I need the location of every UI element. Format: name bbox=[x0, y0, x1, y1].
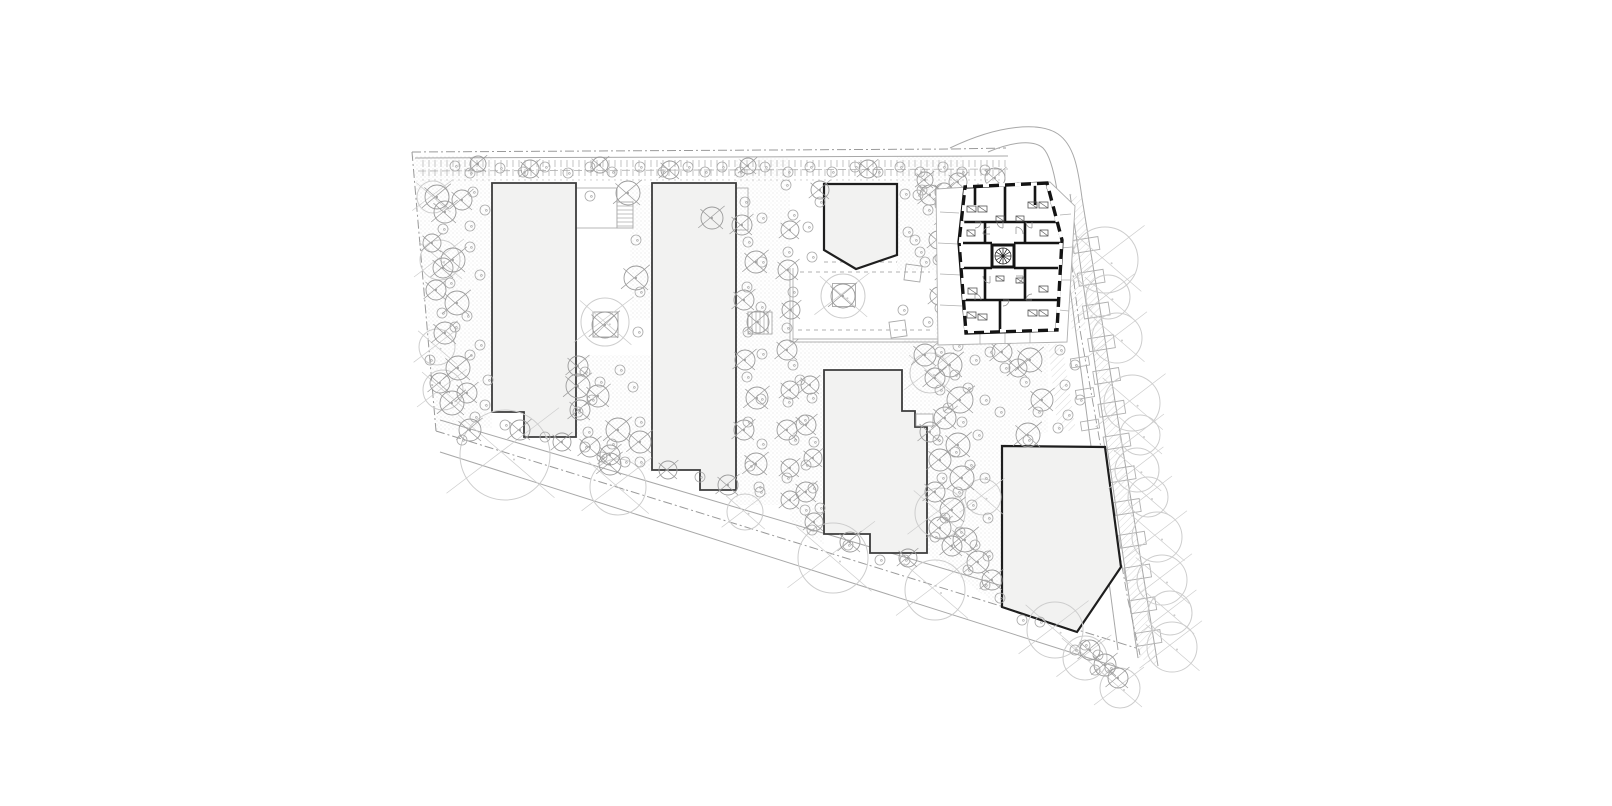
parking-stall bbox=[1080, 419, 1099, 431]
annex-structure bbox=[916, 414, 933, 426]
tree-small bbox=[500, 420, 510, 430]
site-plan bbox=[0, 0, 1612, 806]
tree-small bbox=[585, 191, 595, 201]
tree-small bbox=[807, 252, 817, 262]
site-plan-svg bbox=[0, 0, 1612, 806]
building-e bbox=[1002, 446, 1121, 632]
building-b bbox=[652, 183, 736, 490]
building-c bbox=[824, 184, 897, 269]
site-boundary-line bbox=[412, 149, 952, 152]
tree-small bbox=[875, 555, 885, 565]
tree-small bbox=[1075, 395, 1085, 405]
building-a bbox=[492, 183, 576, 437]
layer-detail-building bbox=[936, 182, 1075, 345]
tree-small bbox=[923, 317, 933, 327]
tree-small bbox=[1017, 615, 1027, 625]
tree-large bbox=[574, 297, 634, 346]
tree-small bbox=[898, 305, 908, 315]
layer-parking-band bbox=[418, 159, 1008, 183]
stair-core bbox=[992, 245, 1014, 267]
plaza-furniture bbox=[889, 320, 907, 338]
tree-small bbox=[803, 222, 813, 232]
tree-small bbox=[633, 327, 643, 337]
